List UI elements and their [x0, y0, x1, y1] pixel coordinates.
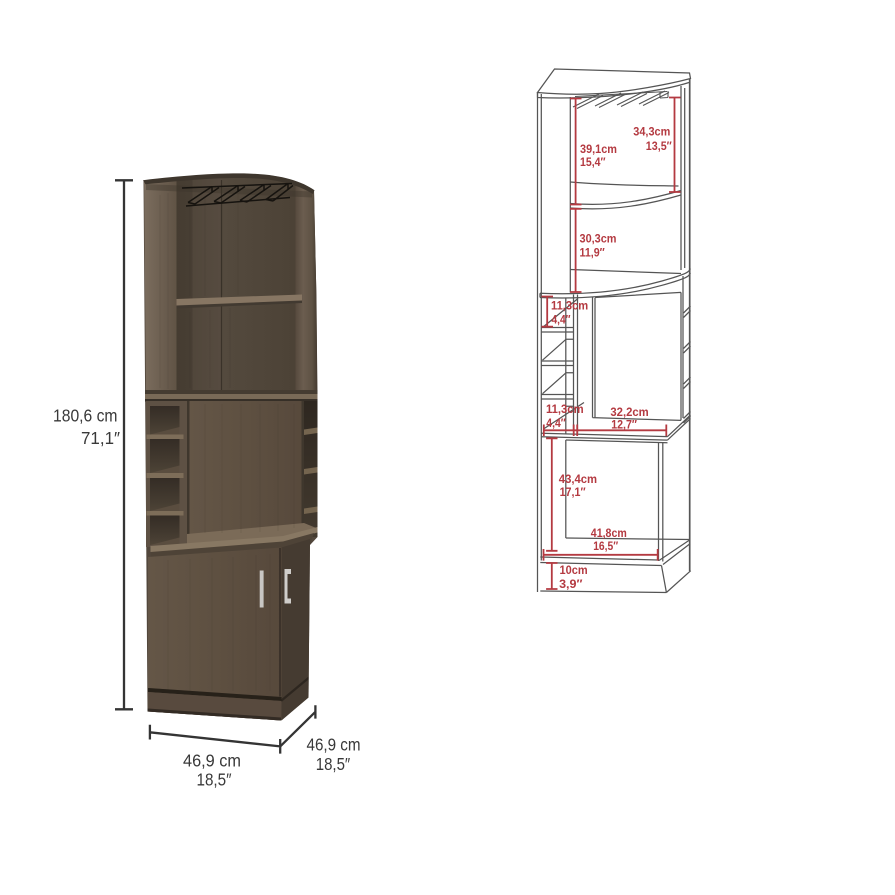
svg-text:16,5″: 16,5″ — [593, 539, 618, 553]
svg-text:17,1″: 17,1″ — [560, 485, 586, 499]
svg-text:71,1″: 71,1″ — [81, 428, 120, 448]
svg-text:4,4″: 4,4″ — [546, 416, 566, 430]
svg-text:41,8cm: 41,8cm — [591, 526, 627, 540]
svg-text:10cm: 10cm — [560, 563, 588, 577]
svg-text:3,9″: 3,9″ — [559, 577, 583, 591]
svg-text:180,6 cm: 180,6 cm — [53, 406, 118, 426]
svg-text:18,5″: 18,5″ — [197, 770, 232, 790]
svg-text:11,3cm: 11,3cm — [546, 402, 584, 416]
svg-text:18,5″: 18,5″ — [316, 754, 351, 774]
svg-text:12,7″: 12,7″ — [611, 418, 637, 432]
svg-text:4,4″: 4,4″ — [552, 312, 571, 326]
svg-text:30,3cm: 30,3cm — [580, 232, 617, 246]
svg-text:11,3cm: 11,3cm — [551, 299, 588, 313]
svg-text:46,9 cm: 46,9 cm — [183, 751, 241, 771]
svg-text:39,1cm: 39,1cm — [580, 142, 617, 156]
svg-text:13,5″: 13,5″ — [646, 139, 672, 153]
svg-text:46,9 cm: 46,9 cm — [307, 735, 361, 755]
svg-text:15,4″: 15,4″ — [580, 155, 606, 169]
svg-text:34,3cm: 34,3cm — [633, 125, 670, 139]
svg-text:11,9″: 11,9″ — [580, 245, 606, 259]
svg-text:43,4cm: 43,4cm — [559, 472, 597, 486]
